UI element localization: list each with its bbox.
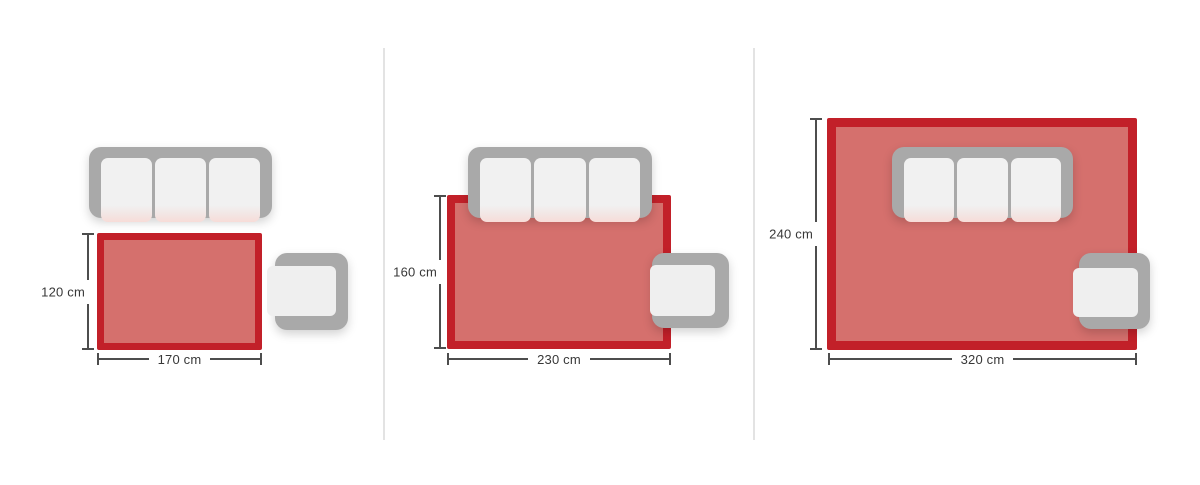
- sofa-cushion-left: [904, 158, 954, 222]
- rug-size-guide-diagram: 120 cm 170 cm 160 cm: [0, 0, 1200, 485]
- rug-height-dimension: 160 cm: [434, 195, 446, 349]
- armchair-top-view: [652, 253, 729, 328]
- rug-height-dimension: 240 cm: [810, 118, 822, 350]
- sofa-cushion-middle: [957, 158, 1007, 222]
- sofa-top-view: [892, 147, 1073, 218]
- dimension-line: [815, 246, 817, 348]
- panel-divider: [383, 48, 385, 440]
- armchair-seat: [1073, 268, 1138, 317]
- dimension-label: 160 cm: [393, 265, 437, 280]
- dimension-tick: [1135, 353, 1137, 365]
- dimension-tick: [434, 347, 446, 349]
- dimension-tick: [810, 348, 822, 350]
- sofa-cushion-right: [589, 158, 640, 222]
- dimension-line: [99, 358, 149, 360]
- armchair-seat: [267, 266, 336, 316]
- dimension-line: [439, 284, 441, 347]
- dimension-line: [449, 358, 528, 360]
- rug-height-dimension: 120 cm: [82, 233, 94, 350]
- armchair-top-view: [275, 253, 348, 330]
- dimension-line: [87, 304, 89, 349]
- dimension-label: 230 cm: [537, 352, 581, 367]
- sofa-top-view: [468, 147, 652, 218]
- dimension-line: [210, 358, 260, 360]
- armchair-seat: [650, 265, 715, 316]
- sofa-cushion-middle: [534, 158, 585, 222]
- rug-width-dimension: 230 cm: [447, 352, 671, 366]
- dimension-line: [87, 235, 89, 280]
- rug-width-dimension: 170 cm: [97, 352, 262, 366]
- dimension-line: [1013, 358, 1135, 360]
- sofa-cushion-left: [101, 158, 152, 222]
- rug-top-view: [97, 233, 262, 350]
- sofa-cushion-middle: [155, 158, 206, 222]
- sofa-cushion-left: [480, 158, 531, 222]
- dimension-line: [439, 197, 441, 260]
- sofa-cushion-right: [209, 158, 260, 222]
- dimension-tick: [260, 353, 262, 365]
- dimension-tick: [82, 348, 94, 350]
- dimension-line: [590, 358, 669, 360]
- dimension-line: [830, 358, 952, 360]
- sofa-top-view: [89, 147, 272, 218]
- dimension-label: 320 cm: [961, 352, 1005, 367]
- armchair-top-view: [1079, 253, 1150, 329]
- dimension-label: 240 cm: [769, 227, 813, 242]
- dimension-label: 170 cm: [158, 352, 202, 367]
- dimension-tick: [669, 353, 671, 365]
- dimension-line: [815, 120, 817, 222]
- rug-width-dimension: 320 cm: [828, 352, 1137, 366]
- sofa-cushion-right: [1011, 158, 1061, 222]
- dimension-label: 120 cm: [41, 284, 85, 299]
- panel-divider: [753, 48, 755, 440]
